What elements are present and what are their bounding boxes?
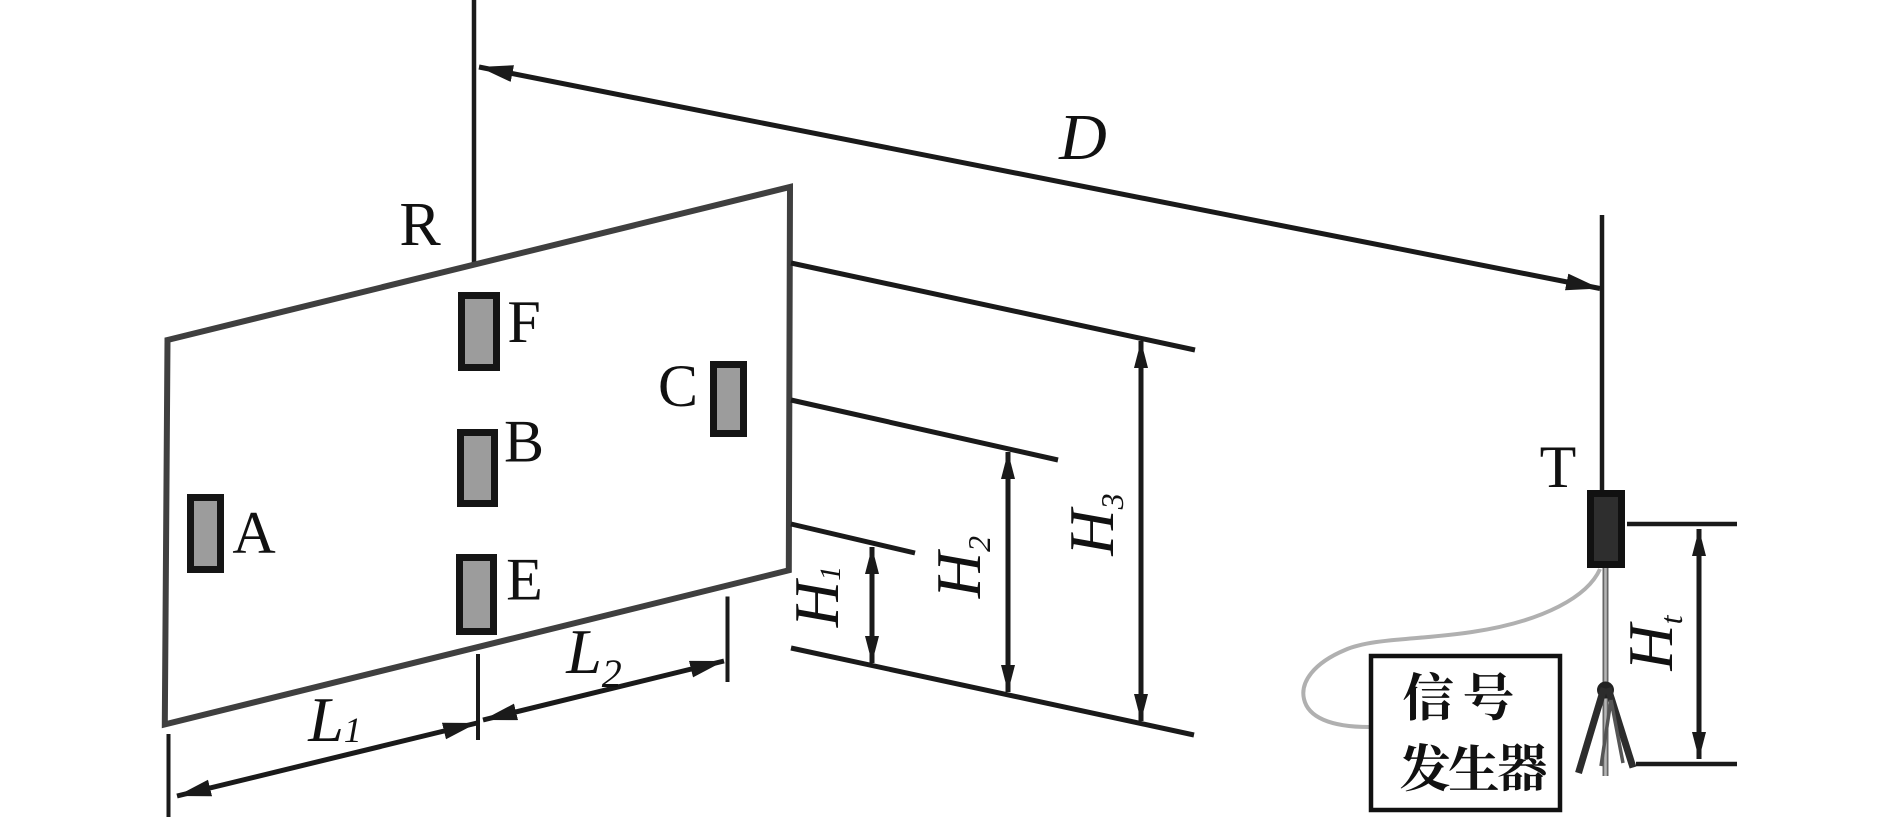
svg-text:H2: H2 <box>923 536 997 599</box>
svg-text:T: T <box>1540 434 1577 500</box>
svg-text:L2: L2 <box>565 616 622 696</box>
svg-text:R: R <box>399 191 441 259</box>
svg-text:B: B <box>504 409 544 475</box>
svg-text:A: A <box>232 500 275 566</box>
svg-text:E: E <box>506 547 543 613</box>
svg-text:L1: L1 <box>307 684 362 755</box>
svg-text:H1: H1 <box>781 566 852 628</box>
svg-text:Ht: Ht <box>1615 614 1689 671</box>
svg-text:C: C <box>658 353 698 419</box>
svg-text:H3: H3 <box>1056 493 1130 556</box>
svg-text:F: F <box>507 289 540 355</box>
svg-text:D: D <box>1058 101 1107 174</box>
